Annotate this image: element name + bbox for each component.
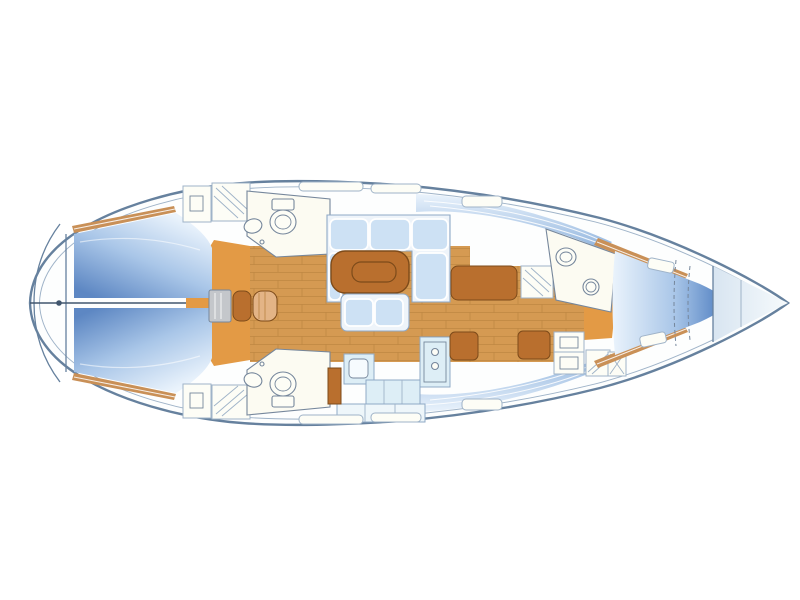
deck-window bbox=[299, 182, 363, 191]
companionway-steps bbox=[209, 290, 231, 322]
washbasin bbox=[583, 279, 599, 295]
faucet-icon bbox=[260, 362, 264, 366]
bow bbox=[713, 266, 788, 342]
yacht-layout-figure bbox=[0, 0, 800, 600]
companionway bbox=[209, 290, 277, 322]
sink-basin bbox=[349, 359, 368, 378]
deck-window bbox=[299, 415, 363, 424]
settee-cushion bbox=[330, 219, 368, 250]
deck-hatch-icon bbox=[462, 196, 502, 207]
settee-cushion bbox=[415, 253, 447, 300]
hanging-locker bbox=[183, 186, 211, 222]
toilet-tank bbox=[272, 396, 294, 407]
bench-seat-port bbox=[451, 266, 517, 300]
toilet bbox=[270, 372, 296, 396]
deck-window bbox=[371, 184, 421, 193]
bench-seat-starboard bbox=[518, 331, 550, 359]
worktop bbox=[366, 380, 420, 406]
toilet bbox=[270, 210, 296, 234]
burner-icon bbox=[432, 363, 439, 370]
dining-table bbox=[331, 251, 409, 293]
engine-box bbox=[233, 291, 251, 321]
hanging-locker bbox=[183, 384, 211, 418]
hanging-locker bbox=[212, 385, 250, 419]
deck-window bbox=[371, 413, 421, 422]
vanity-locker bbox=[554, 332, 584, 374]
burner-icon bbox=[432, 349, 439, 356]
settee-cushion bbox=[370, 219, 410, 250]
settee-cushion bbox=[412, 219, 448, 250]
faucet-icon bbox=[260, 240, 264, 244]
bench-seat-starboard bbox=[450, 332, 478, 360]
backstay-fitting bbox=[56, 300, 62, 306]
bench-cushion bbox=[375, 299, 403, 326]
deck-hatch-icon bbox=[462, 399, 502, 410]
anchor-locker bbox=[713, 266, 788, 342]
refrigerator bbox=[328, 368, 341, 404]
toilet bbox=[556, 248, 576, 266]
toilet-tank bbox=[272, 199, 294, 210]
bench-cushion bbox=[345, 299, 373, 326]
yacht-floor-plan bbox=[0, 0, 800, 600]
